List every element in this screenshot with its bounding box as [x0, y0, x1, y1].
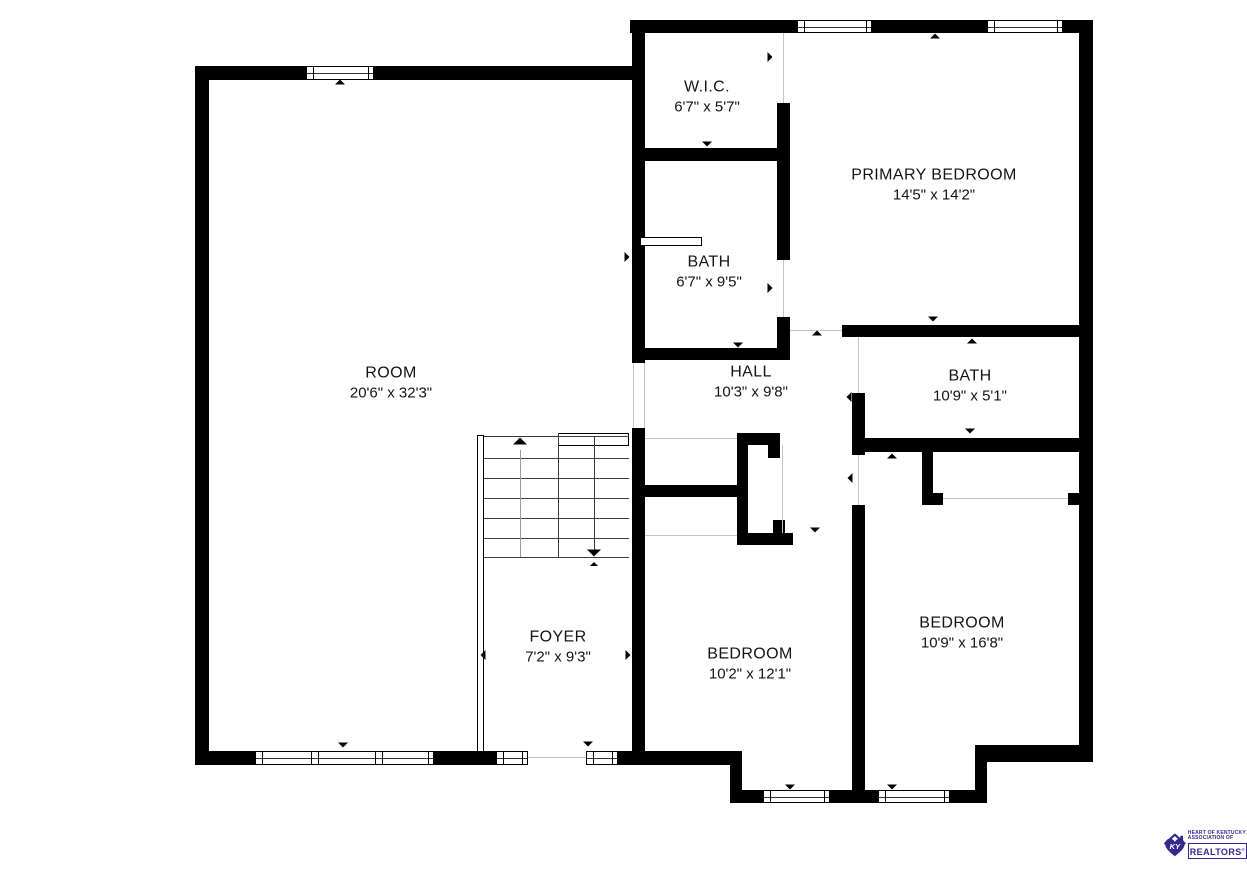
room-label-w-i-c-: W.I.C.6'7" x 5'7"	[674, 77, 740, 118]
dimension-marker	[733, 343, 743, 348]
window-frame-line	[375, 752, 376, 764]
window-frame-line	[612, 752, 613, 764]
window-frame-line	[382, 752, 383, 764]
dimension-marker	[930, 34, 940, 39]
ky-monogram: KY	[1170, 841, 1181, 850]
stair-divider	[558, 433, 559, 557]
window	[763, 790, 830, 803]
window-frame-line	[770, 791, 771, 802]
room-name: FOYER	[525, 627, 591, 648]
thin-wall	[477, 435, 484, 752]
dimension-marker	[785, 175, 790, 185]
dimension-marker	[785, 785, 795, 790]
room-dimensions: 10'9" x 5'1"	[933, 387, 1007, 407]
opening-line	[633, 363, 634, 428]
dimension-marker	[768, 283, 773, 293]
opening-line	[858, 455, 859, 505]
wall	[975, 745, 1093, 762]
stair-tread	[484, 518, 629, 519]
logo-text-line2: ASSOCIATION OF	[1188, 836, 1234, 842]
room-dimensions: 6'7" x 5'7"	[674, 98, 740, 118]
room-label-bath: BATH6'7" x 9'5"	[676, 252, 742, 293]
dimension-marker	[583, 742, 593, 747]
dimension-marker	[702, 142, 712, 147]
dimension-marker	[965, 429, 975, 434]
window-frame-line	[311, 752, 312, 764]
opening-line	[645, 535, 737, 536]
window-frame-line	[428, 752, 429, 764]
room-dimensions: 6'7" x 9'5"	[676, 273, 742, 293]
dimension-marker	[626, 650, 631, 660]
wall	[195, 66, 209, 765]
window	[878, 790, 950, 803]
room-label-foyer: FOYER7'2" x 9'3"	[525, 627, 591, 668]
dimension-marker	[639, 51, 644, 61]
stair-down-stem	[594, 436, 595, 550]
wall	[773, 520, 785, 533]
wall	[768, 445, 780, 458]
wall	[632, 20, 645, 363]
window-frame-line	[944, 791, 945, 802]
window	[496, 751, 528, 765]
room-label-bedroom: BEDROOM10'2" x 12'1"	[707, 644, 792, 685]
window-frame-line	[804, 21, 805, 32]
dimension-marker	[848, 473, 853, 483]
wall	[632, 348, 790, 360]
wall	[852, 438, 1093, 452]
registered-mark: ®	[1242, 847, 1245, 852]
stair-up-arrow	[513, 438, 527, 445]
logo-realtors-badge: REALTORS®	[1188, 843, 1247, 859]
dimension-marker	[338, 743, 348, 748]
thin-wall	[640, 237, 702, 246]
room-name: W.I.C.	[674, 77, 740, 98]
room-name: ROOM	[350, 363, 432, 384]
window-frame-line	[866, 21, 867, 32]
realtor-logo: KY HEART OF KENTUCKY ASSOCIATION OF REAL…	[1163, 820, 1247, 869]
window-glass-line	[988, 27, 1062, 28]
room-dimensions: 10'3" x 9'8"	[714, 383, 788, 403]
dimension-marker	[1082, 373, 1087, 383]
window-glass-line	[798, 27, 871, 28]
room-dimensions: 14'5" x 14'2"	[851, 186, 1016, 206]
stair-tread	[484, 436, 629, 437]
dimension-marker	[625, 252, 630, 262]
room-name: BEDROOM	[919, 613, 1004, 634]
wall	[632, 148, 790, 161]
window-glass-line	[256, 758, 433, 759]
window	[797, 20, 872, 33]
floor-plan-canvas: KY HEART OF KENTUCKY ASSOCIATION OF REAL…	[0, 0, 1247, 869]
wall	[195, 66, 644, 80]
opening-line	[645, 438, 737, 439]
window-frame-line	[522, 752, 523, 764]
room-label-room: ROOM20'6" x 32'3"	[350, 363, 432, 404]
wall	[922, 493, 943, 505]
room-name: BATH	[676, 252, 742, 273]
window-glass-line	[307, 73, 373, 74]
room-name: PRIMARY BEDROOM	[851, 165, 1016, 186]
window	[306, 66, 374, 80]
dimension-marker	[887, 785, 897, 790]
wall	[1068, 493, 1093, 505]
dimension-marker	[1082, 175, 1087, 185]
room-dimensions: 20'6" x 32'3"	[350, 384, 432, 404]
dimension-marker	[812, 331, 822, 336]
room-label-primary-bedroom: PRIMARY BEDROOM14'5" x 14'2"	[851, 165, 1016, 206]
stair-tread	[484, 458, 629, 459]
wall	[737, 533, 793, 545]
dimension-marker	[1082, 617, 1087, 627]
opening-line	[783, 260, 784, 317]
wall	[1079, 20, 1093, 762]
window	[255, 751, 434, 765]
window-frame-line	[503, 752, 504, 764]
room-label-bath: BATH10'9" x 5'1"	[933, 366, 1007, 407]
dimension-marker	[847, 392, 852, 402]
room-name: BEDROOM	[707, 644, 792, 665]
window-frame-line	[368, 67, 369, 79]
stair-down-tick	[590, 562, 598, 566]
wall	[632, 428, 645, 765]
window-frame-line	[313, 67, 314, 79]
room-dimensions: 10'2" x 12'1"	[707, 665, 792, 685]
window-frame-line	[885, 791, 886, 802]
window-frame-line	[593, 752, 594, 764]
logo-realtors-text: REALTORS	[1190, 847, 1242, 857]
window-glass-line	[879, 797, 949, 798]
ky-heart-house-icon: KY	[1163, 822, 1187, 868]
window-frame-line	[318, 752, 319, 764]
wall	[632, 485, 748, 497]
wall	[730, 751, 742, 803]
dimension-marker	[203, 252, 208, 262]
stair-tread	[484, 478, 629, 479]
room-label-hall: HALL10'3" x 9'8"	[714, 362, 788, 403]
opening-line	[782, 445, 783, 533]
stair-down-arrow	[587, 550, 601, 557]
room-name: HALL	[714, 362, 788, 383]
wall	[842, 325, 1093, 337]
wall	[852, 505, 865, 803]
room-label-bedroom: BEDROOM10'9" x 16'8"	[919, 613, 1004, 654]
dimension-marker	[928, 317, 938, 322]
opening-line	[943, 498, 1068, 499]
stair-tread	[484, 557, 629, 558]
stair-tread	[484, 538, 629, 539]
window	[987, 20, 1063, 33]
dimension-marker	[855, 617, 860, 627]
dimension-marker	[850, 332, 860, 337]
opening-line	[644, 363, 645, 428]
window-frame-line	[994, 21, 995, 32]
dimension-marker	[810, 528, 820, 533]
window-frame-line	[262, 752, 263, 764]
wall	[737, 433, 780, 445]
opening-line	[528, 757, 588, 758]
dimension-marker	[967, 339, 977, 344]
room-name: BATH	[933, 366, 1007, 387]
window	[586, 751, 618, 765]
dimension-marker	[768, 52, 773, 62]
stair-tread	[484, 498, 629, 499]
window-frame-line	[824, 791, 825, 802]
dimension-marker	[887, 454, 897, 459]
opening-line	[783, 33, 784, 103]
dimension-marker	[335, 80, 345, 85]
opening-line	[858, 337, 859, 393]
stair-up-stem	[520, 450, 521, 557]
dimension-marker	[481, 650, 486, 660]
door-opening	[526, 751, 588, 765]
room-dimensions: 10'9" x 16'8"	[919, 634, 1004, 654]
window-glass-line	[764, 797, 829, 798]
window-frame-line	[1057, 21, 1058, 32]
room-dimensions: 7'2" x 9'3"	[525, 648, 591, 668]
